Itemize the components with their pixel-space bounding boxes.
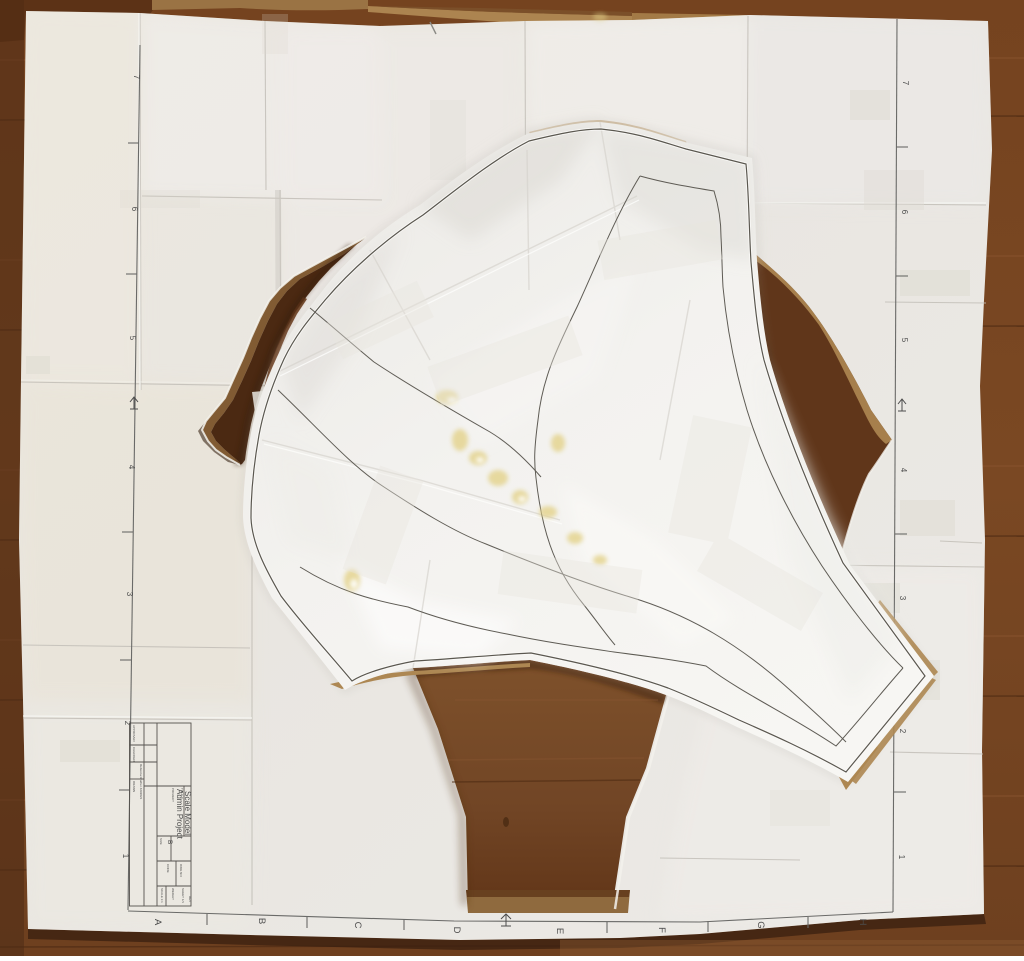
svg-text:A: A [152, 919, 163, 926]
svg-text:CODE: CODE [166, 864, 170, 873]
svg-text:7: 7 [132, 75, 141, 80]
svg-text:Rebecca Grafner 4/9/2021: Rebecca Grafner 4/9/2021 [139, 764, 143, 800]
svg-text:6: 6 [130, 207, 139, 212]
svg-text:F: F [656, 927, 667, 933]
svg-text:5: 5 [900, 338, 909, 343]
svg-text:G: G [755, 921, 766, 928]
svg-text:1: 1 [121, 854, 130, 859]
svg-text:6: 6 [900, 210, 909, 215]
svg-text:SHEET 1/1: SHEET 1/1 [181, 888, 185, 903]
svg-text:Scale Model: Scale Model [183, 791, 192, 835]
svg-text:APPROVED: APPROVED [132, 725, 136, 743]
svg-text:WEIGHT: WEIGHT [171, 888, 175, 900]
svg-text:CHECKED: CHECKED [132, 747, 136, 763]
svg-text:5: 5 [128, 336, 137, 341]
svg-text:1: 1 [897, 855, 906, 860]
svg-text:REV: REV [188, 896, 192, 902]
svg-text:SIZE: SIZE [159, 838, 163, 845]
svg-text:2: 2 [898, 729, 907, 734]
svg-text:3: 3 [898, 596, 907, 601]
svg-text:E: E [554, 928, 565, 934]
svg-text:B: B [256, 918, 267, 924]
svg-text:B: B [166, 840, 173, 844]
svg-text:TITLE: TITLE [180, 788, 184, 796]
svg-text:4: 4 [127, 465, 136, 470]
svg-text:H: H [857, 919, 868, 926]
svg-text:3: 3 [125, 592, 134, 597]
svg-text:PROJECT: PROJECT [171, 788, 175, 802]
svg-text:SCALE 1:1: SCALE 1:1 [160, 888, 164, 903]
svg-text:4: 4 [899, 468, 908, 473]
svg-text:C: C [352, 922, 363, 929]
svg-text:7: 7 [901, 81, 910, 86]
svg-text:DWG NO: DWG NO [179, 864, 183, 877]
svg-text:DRAWN: DRAWN [132, 781, 136, 792]
svg-text:Admin Project: Admin Project [175, 789, 184, 840]
svg-text:D: D [451, 927, 462, 934]
